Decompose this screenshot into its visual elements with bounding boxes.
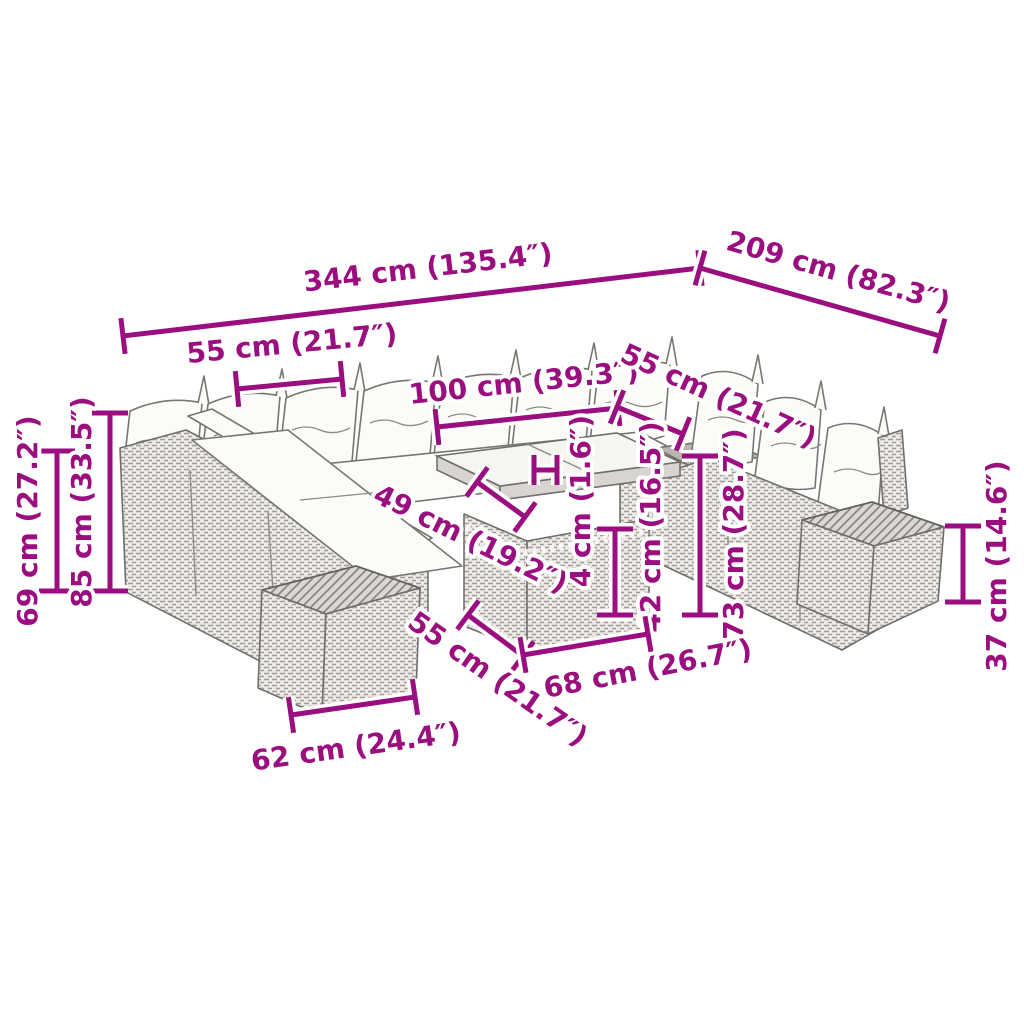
dim-table-top-thickness-label: 4 cm (1.6″) [564,415,597,587]
right-sofa-back-post [878,430,908,516]
cushion-corner-tip [815,381,826,410]
dim-back-height: 85 cm (33.5″) [65,396,128,607]
dim-stool-height: 37 cm (14.6″) [945,460,1013,671]
dim-stool-height-label: 37 cm (14.6″) [980,460,1013,671]
dimension-diagram: 344 cm (135.4″)209 cm (82.3″)55 cm (21.7… [0,0,1024,1024]
dim-stool-width-label: 62 cm (24.4″) [249,715,463,777]
dim-total-depth: 209 cm (82.3″) [695,224,954,353]
cushion-corner-tip [354,363,365,392]
dim-table-base-height-label: 42 cm (16.5″) [634,421,667,632]
footstool-left [258,566,420,716]
dim-sofa-table-height-label: 73 cm (28.7″) [717,428,750,639]
cushion-corner-tip [198,376,209,405]
dim-back-height-label: 85 cm (33.5″) [65,396,98,607]
dim-stool-height-line [945,526,981,602]
dim-seat-height-label: 69 cm (27.2″) [11,415,44,626]
dim-table-top-thickness: 4 cm (1.6″) [564,415,597,587]
cushion-corner-tip [878,407,889,436]
cushion-corner-tip [752,355,763,384]
furniture-illustration: 344 cm (135.4″)209 cm (82.3″)55 cm (21.7… [0,0,1024,1024]
